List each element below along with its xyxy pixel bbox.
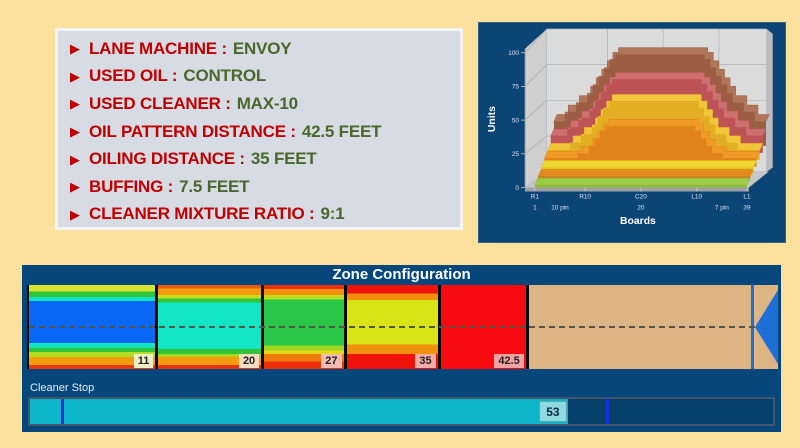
pattern-info-item: ▶BUFFING :7.5 FEET — [70, 173, 460, 201]
info-value: 42.5 FEET — [302, 122, 381, 142]
info-label: OILING DISTANCE : — [89, 149, 245, 169]
left-arrow-icon — [755, 290, 778, 364]
zone-distance-tag: 11 — [134, 354, 154, 368]
y-tick-label: 25 — [512, 151, 520, 158]
pattern-info-item: ▶LANE MACHINE :ENVOY — [70, 35, 460, 63]
bullet-triangle-icon: ▶ — [70, 153, 80, 166]
x-tick-label-top: R1 — [531, 193, 540, 200]
oil-distribution-panel: 0255075100R1R10C20L10L1110 pin207 pin39B… — [478, 22, 786, 243]
x-tick-label-bottom: 7 pin — [715, 204, 729, 211]
y-tick-label: 100 — [508, 50, 519, 57]
cleaner-stop-value: 53 — [539, 401, 567, 422]
x-tick-label-bottom: 20 — [637, 204, 645, 211]
info-label: BUFFING : — [89, 177, 173, 197]
zone-distance-tag: 35 — [415, 354, 435, 368]
series-top-strip-green — [535, 178, 750, 185]
x-tick-label-bottom: 1 — [533, 204, 537, 211]
bullet-triangle-icon: ▶ — [70, 125, 80, 138]
info-label: USED OIL : — [89, 66, 177, 86]
pattern-info-item: ▶CLEANER MIXTURE RATIO :9:1 — [70, 201, 460, 229]
chart-floor-edge — [525, 187, 749, 191]
info-label: CLEANER MIXTURE RATIO : — [89, 204, 315, 224]
bullet-triangle-icon: ▶ — [70, 70, 80, 83]
bullet-triangle-icon: ▶ — [70, 42, 80, 55]
x-tick-label-bottom: 10 pin — [551, 204, 569, 211]
info-value: 35 FEET — [251, 149, 317, 169]
chart-right-wall — [767, 29, 773, 172]
oil-pattern-3d-chart: 0255075100R1R10C20L10L1110 pin207 pin39B… — [479, 23, 785, 242]
zone-strip: 1120273542.5 — [27, 285, 778, 369]
x-axis-title: Boards — [620, 216, 656, 227]
cleaner-stop-fill[interactable]: 53 — [30, 399, 568, 424]
zone-segment-20[interactable]: 20 — [158, 285, 264, 369]
series-top-strip-yellow — [541, 161, 756, 168]
zone-configuration-panel: Zone Configuration 1120273542.5 Cleaner … — [22, 265, 781, 432]
pattern-info-list: ▶LANE MACHINE :ENVOY▶USED OIL :CONTROL▶U… — [58, 31, 460, 228]
bullet-triangle-icon: ▶ — [70, 180, 80, 193]
zone-end-arrow-box[interactable] — [754, 285, 778, 369]
x-tick-label-top: L1 — [743, 193, 751, 200]
info-value: ENVOY — [233, 39, 292, 59]
info-value: 7.5 FEET — [179, 177, 249, 197]
zone-segment-11[interactable]: 11 — [29, 285, 158, 369]
y-tick-label: 50 — [512, 117, 520, 124]
y-tick-label: 0 — [515, 185, 519, 192]
info-label: LANE MACHINE : — [89, 39, 227, 59]
pattern-info-item: ▶OILING DISTANCE :35 FEET — [70, 145, 460, 173]
cleaner-stop-slider[interactable]: 53 — [28, 397, 775, 426]
info-value: CONTROL — [183, 66, 266, 86]
zone-segment-dry-lane[interactable] — [529, 285, 751, 369]
y-tick-label: 75 — [512, 84, 520, 91]
zone-segment-27[interactable]: 27 — [264, 285, 346, 369]
cleaner-stop-marker-right[interactable] — [606, 399, 609, 424]
series-top-strip-orange — [538, 170, 753, 177]
x-tick-label-bottom: 39 — [743, 204, 751, 211]
pattern-info-item: ▶OIL PATTERN DISTANCE :42.5 FEET — [70, 118, 460, 146]
zone-configuration-title: Zone Configuration — [22, 266, 781, 283]
info-label: USED CLEANER : — [89, 94, 231, 114]
info-value: 9:1 — [321, 204, 345, 224]
y-axis-title: Units — [487, 106, 498, 132]
zone-distance-tag: 27 — [321, 354, 341, 368]
info-value: MAX-10 — [237, 94, 298, 114]
bullet-triangle-icon: ▶ — [70, 97, 80, 110]
cleaner-stop-marker-left[interactable] — [61, 399, 64, 424]
series-face-strip-green — [535, 185, 747, 187]
zone-distance-tag: 20 — [239, 354, 259, 368]
x-tick-label-top: C20 — [635, 193, 647, 200]
cleaner-stop-label: Cleaner Stop — [30, 382, 94, 394]
zone-distance-tag: 42.5 — [494, 354, 523, 368]
pattern-info-panel: ▶LANE MACHINE :ENVOY▶USED OIL :CONTROL▶U… — [55, 28, 463, 230]
zone-segment-35[interactable]: 35 — [347, 285, 441, 369]
pattern-info-item: ▶USED OIL :CONTROL — [70, 63, 460, 91]
x-tick-label-top: L10 — [691, 193, 702, 200]
bullet-triangle-icon: ▶ — [70, 208, 80, 221]
zone-segment-42.5[interactable]: 42.5 — [441, 285, 529, 369]
x-tick-label-top: R10 — [579, 193, 591, 200]
info-label: OIL PATTERN DISTANCE : — [89, 122, 296, 142]
pattern-info-item: ▶USED CLEANER :MAX-10 — [70, 90, 460, 118]
